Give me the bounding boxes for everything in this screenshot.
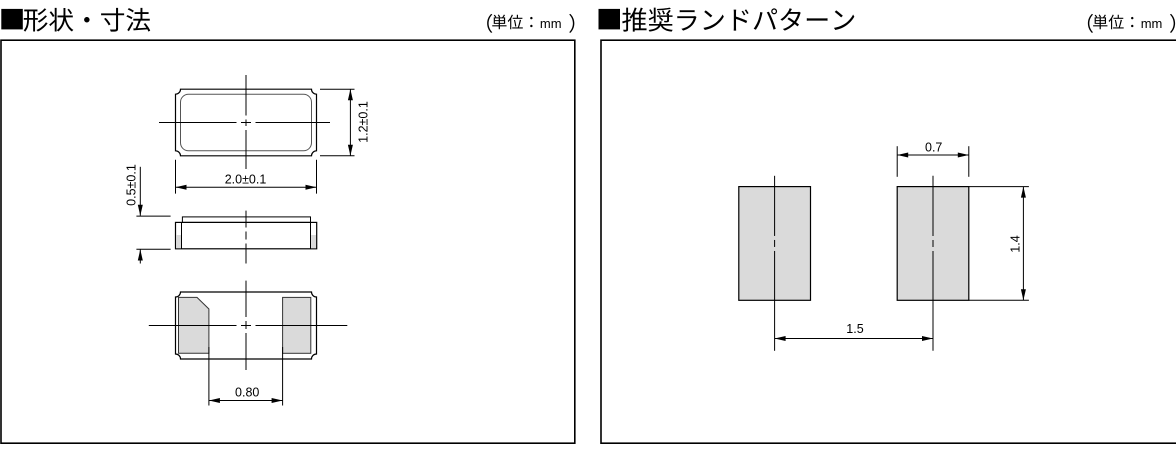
svg-text:（: （ [1074, 8, 1094, 37]
svg-text:0.80: 0.80 [235, 386, 259, 400]
svg-text:mm: mm [540, 16, 562, 31]
svg-text:推奨ランドパターン: 推奨ランドパターン [622, 0, 857, 38]
svg-text:mm: mm [1141, 16, 1163, 31]
svg-text:1.5: 1.5 [846, 322, 863, 336]
svg-text:形状・寸法: 形状・寸法 [23, 1, 151, 38]
svg-text:1.4: 1.4 [1008, 235, 1022, 252]
svg-text:0.5±0.1: 0.5±0.1 [125, 164, 139, 206]
svg-text:単位：: 単位： [1092, 9, 1140, 33]
svg-text:1.2±0.1: 1.2±0.1 [356, 101, 370, 143]
svg-text:）: ） [1169, 8, 1176, 37]
svg-text:単位：: 単位： [491, 9, 539, 33]
svg-text:0.7: 0.7 [925, 141, 942, 155]
svg-text:）: ） [568, 8, 588, 37]
svg-text:（: （ [473, 8, 493, 37]
svg-text:2.0±0.1: 2.0±0.1 [225, 172, 267, 186]
